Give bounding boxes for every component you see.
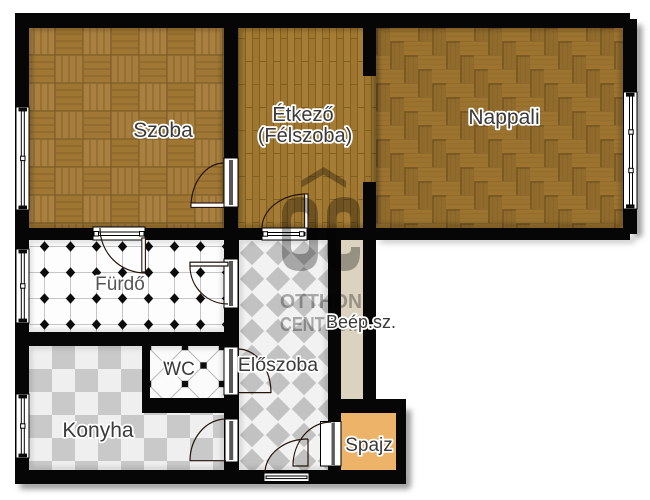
svg-text:Konyha: Konyha	[62, 419, 134, 442]
svg-text:Spajz: Spajz	[345, 435, 393, 456]
svg-text:Szoba: Szoba	[133, 119, 193, 142]
svg-text:WC: WC	[163, 359, 195, 380]
svg-text:OTTHON: OTTHON	[280, 291, 362, 313]
svg-text:(Félszoba): (Félszoba)	[258, 125, 352, 147]
svg-text:Fürdő: Fürdő	[95, 274, 145, 295]
svg-text:Beép.sz.: Beép.sz.	[326, 312, 396, 332]
svg-text:Nappali: Nappali	[468, 106, 539, 129]
svg-text:Előszoba: Előszoba	[238, 354, 318, 376]
svg-text:Étkező: Étkező	[272, 103, 333, 126]
